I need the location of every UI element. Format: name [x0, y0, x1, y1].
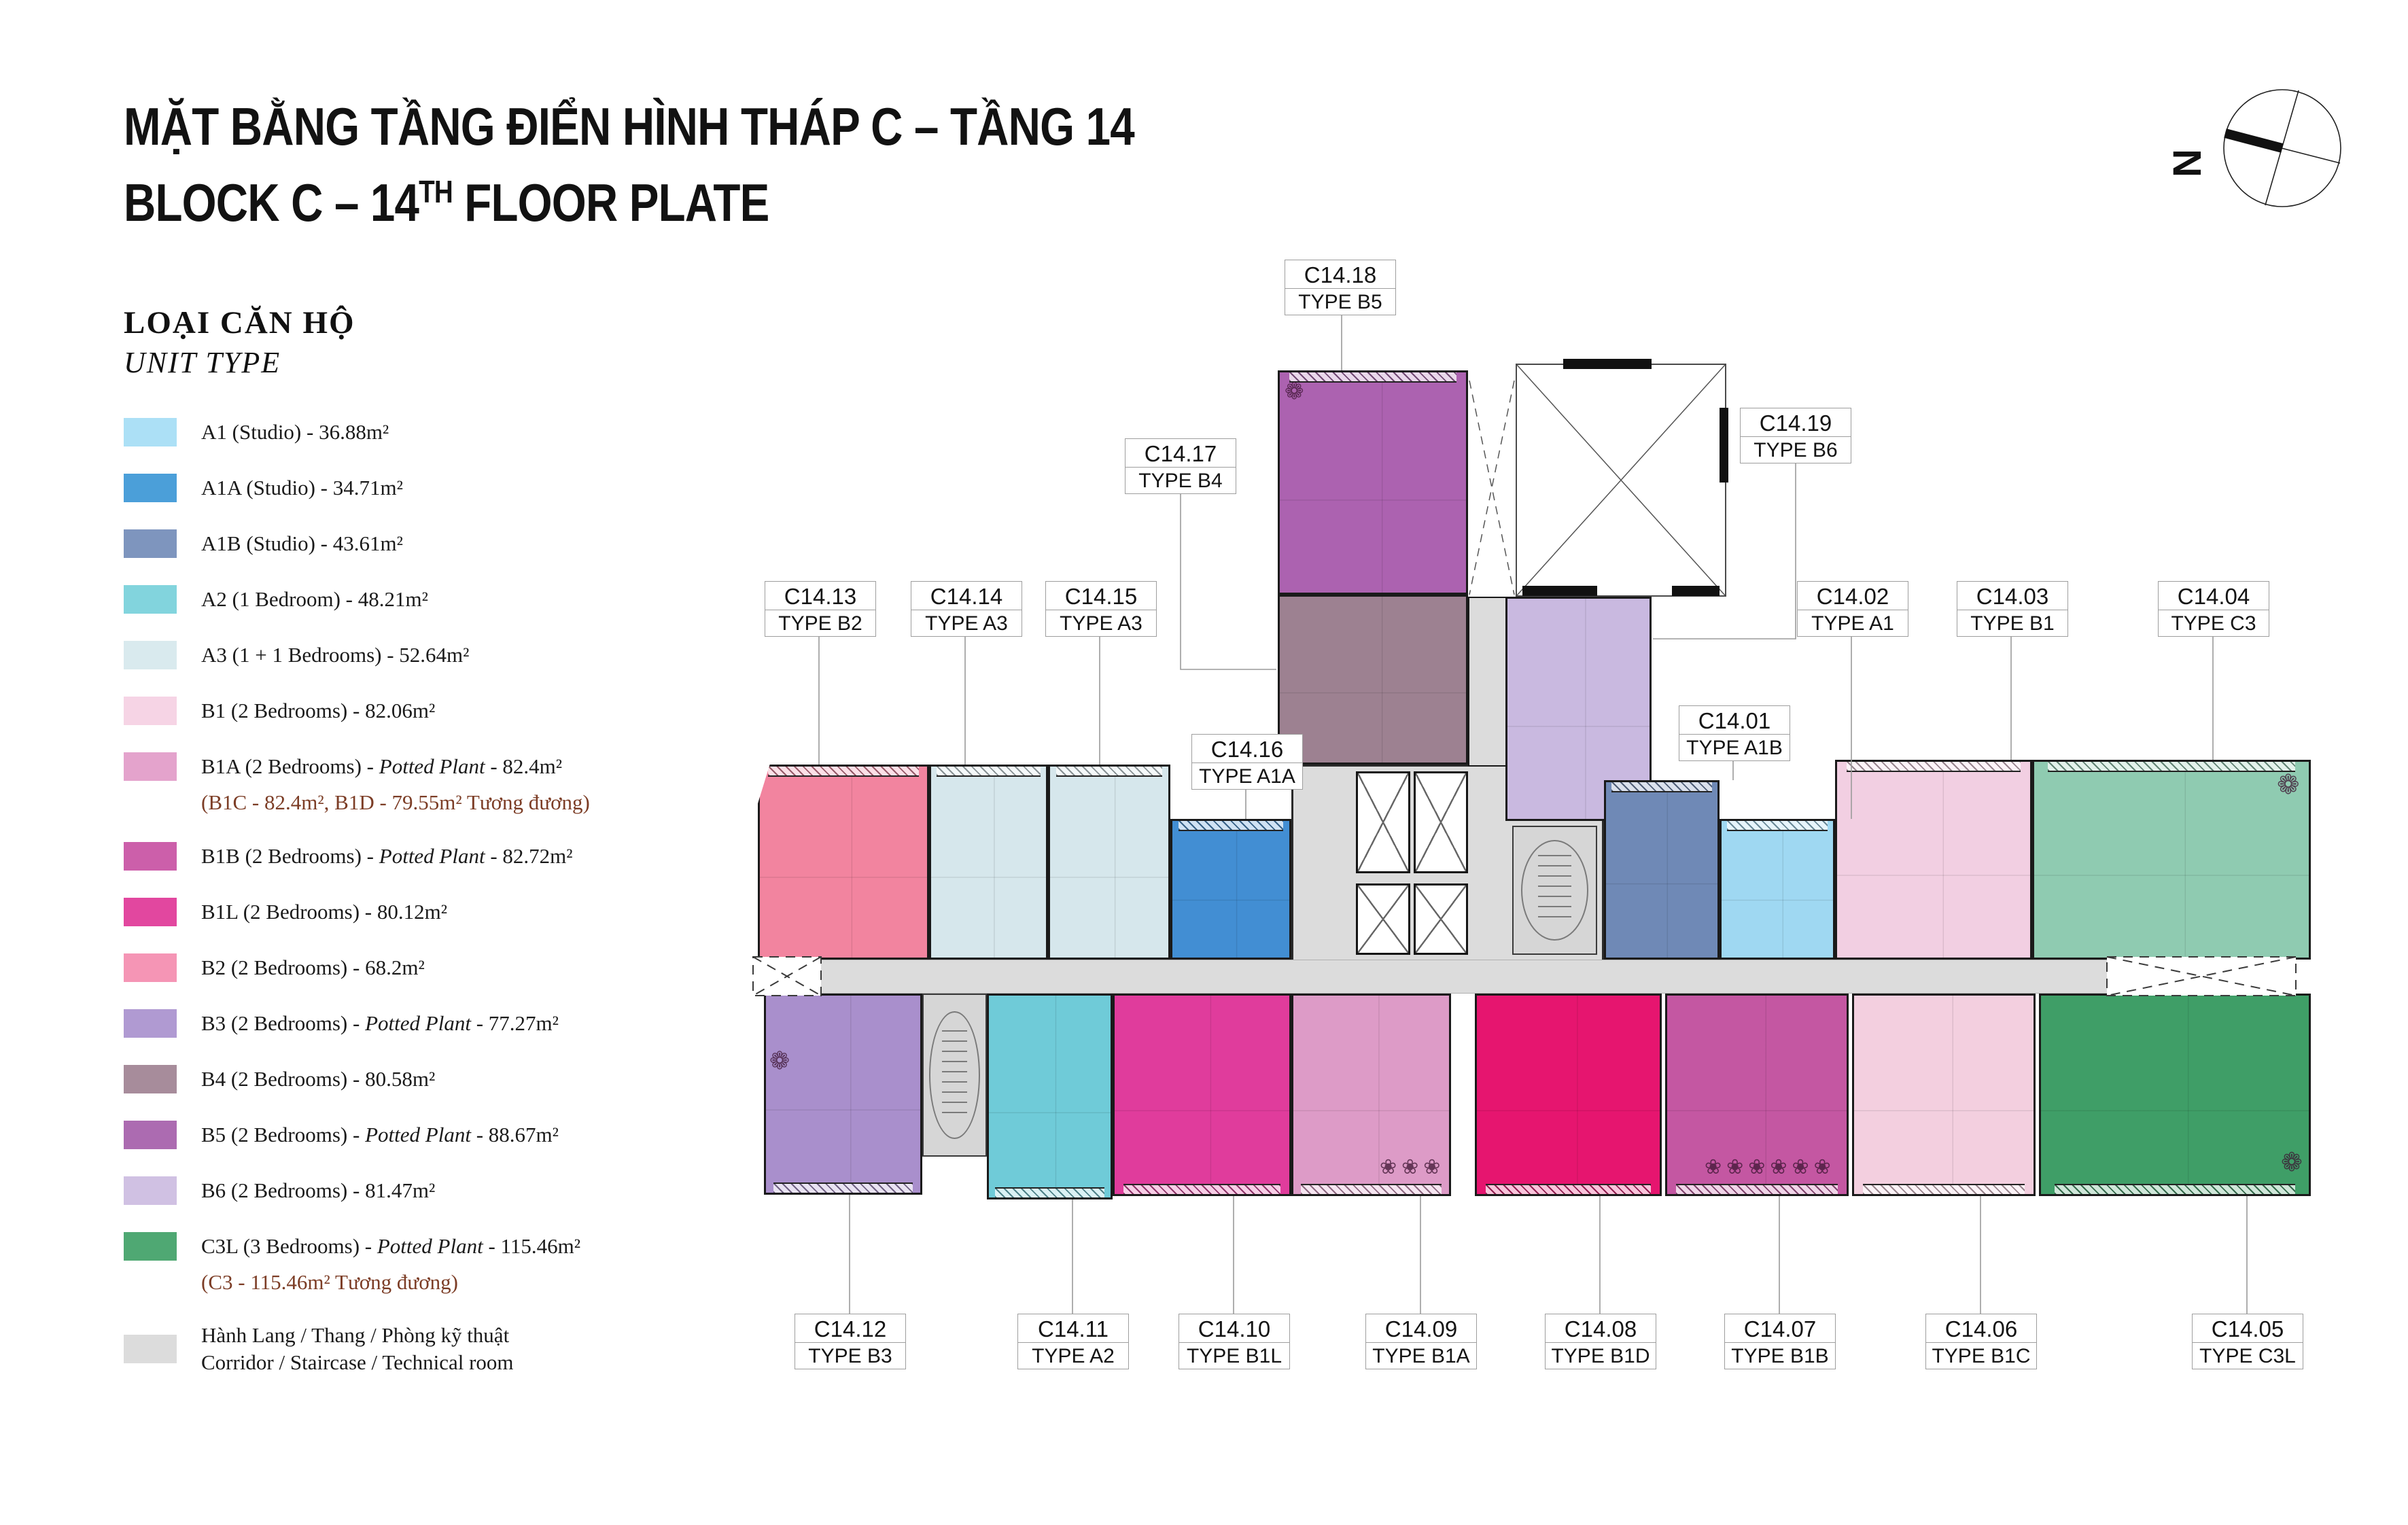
- legend-swatch-B1: [124, 697, 177, 725]
- unit-C14.06-B1C: [1852, 994, 2036, 1196]
- north-arrow: [2225, 133, 2282, 148]
- legend-swatch-A3: [124, 641, 177, 669]
- legend-item-B1L: B1L (2 Bedrooms) - 80.12m²: [124, 898, 790, 926]
- legend-item-CORR: Hành Lang / Thang / Phòng kỹ thuậtCorrid…: [124, 1322, 790, 1376]
- legend-label: A1B (Studio) - 43.61m²: [201, 530, 403, 557]
- north-label: N: [2165, 149, 2210, 177]
- legend-item-B1A: B1A (2 Bedrooms) - Potted Plant - 82.4m²: [124, 752, 790, 781]
- title-line-en-tail: FLOOR PLATE: [453, 173, 769, 232]
- elevator-shaft: [1414, 883, 1468, 955]
- title-line-en-text: BLOCK C – 14: [124, 173, 419, 232]
- legend-item-B1B: B1B (2 Bedrooms) - Potted Plant - 82.72m…: [124, 842, 790, 871]
- fan-icon: ❁: [2277, 769, 2305, 801]
- fan-icon: ❁: [2281, 1147, 2307, 1178]
- legend-label: B1L (2 Bedrooms) - 80.12m²: [201, 898, 447, 926]
- core-staircase: [1512, 826, 1597, 955]
- legend-swatch-CORR: [124, 1335, 177, 1363]
- technical-void: [1516, 364, 1726, 597]
- fan-icon: ❁: [769, 1047, 795, 1075]
- unit-C14.05-C3L: [2039, 994, 2311, 1196]
- legend-label: A1A (Studio) - 34.71m²: [201, 474, 403, 502]
- floor-plate-sheet: MẶT BẰNG TẦNG ĐIỂN HÌNH THÁP C – TẦNG 14…: [0, 0, 2408, 1525]
- legend-item-A1: A1 (Studio) - 36.88m²: [124, 418, 790, 446]
- unit-label-C14.18: C14.18TYPE B5: [1285, 260, 1396, 315]
- elevator-shaft: [1356, 883, 1410, 955]
- unit-C14.15-A3: [1048, 765, 1170, 960]
- legend-item-B6: B6 (2 Bedrooms) - 81.47m²: [124, 1176, 790, 1205]
- legend-swatch-A2: [124, 585, 177, 614]
- legend-label: B2 (2 Bedrooms) - 68.2m²: [201, 954, 425, 981]
- legend-swatch-B1B: [124, 842, 177, 871]
- unit-C14.11-A2: [987, 994, 1113, 1199]
- legend-swatch-B2: [124, 953, 177, 982]
- unit-label-C14.03: C14.03TYPE B1: [1957, 581, 2068, 637]
- unit-label-C14.17: C14.17TYPE B4: [1125, 438, 1236, 494]
- legend-item-B2: B2 (2 Bedrooms) - 68.2m²: [124, 953, 790, 982]
- unit-label-C14.07: C14.07TYPE B1B: [1724, 1314, 1836, 1369]
- legend-item-A2: A2 (1 Bedroom) - 48.21m²: [124, 585, 790, 614]
- legend-label: B3 (2 Bedrooms) - Potted Plant - 77.27m²: [201, 1010, 559, 1037]
- unit-C14.17-B4: [1278, 595, 1468, 765]
- legend-swatch-B1A: [124, 752, 177, 781]
- unit-label-C14.02: C14.02TYPE A1: [1797, 581, 1908, 637]
- unit-label-C14.19: C14.19TYPE B6: [1740, 408, 1851, 463]
- unit-label-C14.12: C14.12TYPE B3: [795, 1314, 906, 1369]
- legend-item-B4: B4 (2 Bedrooms) - 80.58m²: [124, 1065, 790, 1093]
- staircase-block: [922, 994, 987, 1157]
- corridor: [819, 960, 2107, 994]
- unit-label-C14.15: C14.15TYPE A3: [1045, 581, 1157, 637]
- unit-C14.16-A1A: [1170, 819, 1291, 960]
- legend-label: Hành Lang / Thang / Phòng kỹ thuậtCorrid…: [201, 1322, 514, 1376]
- legend-heading-vi: LOẠI CĂN HỘ: [124, 304, 790, 341]
- legend-swatch-A1A: [124, 474, 177, 502]
- legend-heading-en: UNIT TYPE: [124, 345, 790, 380]
- legend-swatch-B5: [124, 1121, 177, 1149]
- legend-label: B6 (2 Bedrooms) - 81.47m²: [201, 1177, 435, 1204]
- legend-label: C3L (3 Bedrooms) - Potted Plant - 115.46…: [201, 1233, 580, 1260]
- legend-items: A1 (Studio) - 36.88m²A1A (Studio) - 34.7…: [124, 418, 790, 1376]
- legend-swatch-B6: [124, 1176, 177, 1205]
- unit-C14.10-B1L: [1113, 994, 1291, 1196]
- legend-item-A1B: A1B (Studio) - 43.61m²: [124, 529, 790, 558]
- legend-swatch-C3L: [124, 1232, 177, 1261]
- legend-item-B1: B1 (2 Bedrooms) - 82.06m²: [124, 697, 790, 725]
- unit-label-C14.04: C14.04TYPE C3: [2158, 581, 2269, 637]
- legend-item-A3: A3 (1 + 1 Bedrooms) - 52.64m²: [124, 641, 790, 669]
- legend-label: B1B (2 Bedrooms) - Potted Plant - 82.72m…: [201, 843, 573, 870]
- unit-label-C14.11: C14.11TYPE A2: [1017, 1314, 1129, 1369]
- unit-C14.01-A1B: [1604, 780, 1720, 960]
- legend-label: B4 (2 Bedrooms) - 80.58m²: [201, 1066, 435, 1093]
- unit-C14.02-A1: [1720, 819, 1835, 960]
- unit-C14.13-B2: [758, 765, 929, 960]
- unit-label-C14.10: C14.10TYPE B1L: [1179, 1314, 1290, 1369]
- unit-label-C14.13: C14.13TYPE B2: [765, 581, 876, 637]
- unit-label-C14.05: C14.05TYPE C3L: [2192, 1314, 2303, 1369]
- unit-C14.03-B1: [1835, 760, 2032, 960]
- page-title: MẶT BẰNG TẦNG ĐIỂN HÌNH THÁP C – TẦNG 14…: [124, 94, 1134, 235]
- balcony-flowers: ❀❀❀: [1380, 1155, 1445, 1179]
- unit-label-C14.06: C14.06TYPE B1C: [1925, 1314, 2037, 1369]
- legend-swatch-B1L: [124, 898, 177, 926]
- unit-C14.12-B3: [764, 994, 922, 1195]
- unit-C14.14-A3: [929, 765, 1048, 960]
- unit-label-C14.01: C14.01TYPE A1B: [1679, 705, 1790, 761]
- unit-C14.04-C3: [2032, 760, 2311, 960]
- fan-icon: ❁: [1285, 378, 1309, 405]
- legend-item-A1A: A1A (Studio) - 34.71m²: [124, 474, 790, 502]
- legend-swatch-B3: [124, 1009, 177, 1038]
- legend-swatch-A1B: [124, 529, 177, 558]
- legend-label: A1 (Studio) - 36.88m²: [201, 419, 389, 446]
- legend-item-C3L: C3L (3 Bedrooms) - Potted Plant - 115.46…: [124, 1232, 790, 1261]
- compass-rose: N: [2165, 90, 2341, 207]
- legend-item-B5: B5 (2 Bedrooms) - Potted Plant - 88.67m²: [124, 1121, 790, 1149]
- legend-label: B1 (2 Bedrooms) - 82.06m²: [201, 697, 435, 724]
- unit-label-C14.16: C14.16TYPE A1A: [1191, 734, 1303, 790]
- balcony-flowers: ❀❀❀❀❀❀: [1705, 1155, 1836, 1179]
- title-ordinal-sup: TH: [419, 174, 453, 209]
- elevator-shaft: [1356, 771, 1410, 873]
- title-line-en: BLOCK C – 14TH FLOOR PLATE: [124, 159, 1134, 235]
- unit-label-C14.09: C14.09TYPE B1A: [1365, 1314, 1477, 1369]
- legend-label: A2 (1 Bedroom) - 48.21m²: [201, 586, 428, 613]
- legend-item-B3: B3 (2 Bedrooms) - Potted Plant - 77.27m²: [124, 1009, 790, 1038]
- unit-C14.08-B1D: [1475, 994, 1662, 1196]
- legend-label: B5 (2 Bedrooms) - Potted Plant - 88.67m²: [201, 1121, 559, 1149]
- unit-type-legend: LOẠI CĂN HỘ UNIT TYPE A1 (Studio) - 36.8…: [124, 304, 790, 1403]
- legend-note-C3L: (C3 - 115.46m² Tương đương): [201, 1270, 790, 1295]
- title-line-vi: MẶT BẰNG TẦNG ĐIỂN HÌNH THÁP C – TẦNG 14: [124, 94, 1134, 159]
- legend-label: B1A (2 Bedrooms) - Potted Plant - 82.4m²: [201, 753, 562, 780]
- legend-swatch-B4: [124, 1065, 177, 1093]
- elevator-shaft: [1414, 771, 1468, 873]
- legend-swatch-A1: [124, 418, 177, 446]
- unit-label-C14.14: C14.14TYPE A3: [911, 581, 1022, 637]
- legend-label: A3 (1 + 1 Bedrooms) - 52.64m²: [201, 642, 469, 669]
- legend-note-B1A: (B1C - 82.4m², B1D - 79.55m² Tương đương…: [201, 790, 790, 815]
- unit-label-C14.08: C14.08TYPE B1D: [1545, 1314, 1656, 1369]
